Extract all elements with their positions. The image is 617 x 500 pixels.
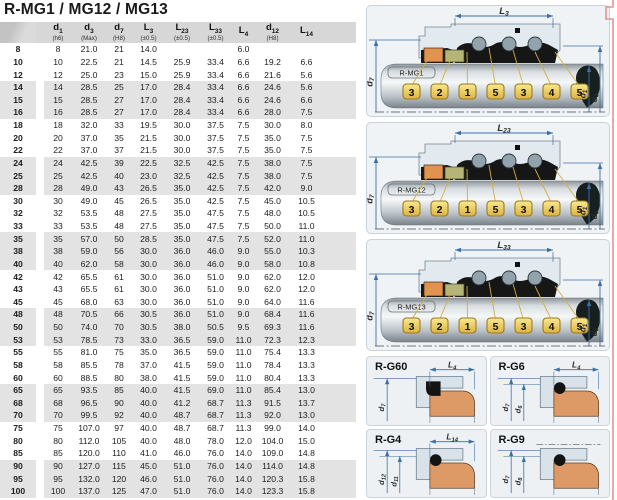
value-cell: 12.0 (290, 284, 323, 294)
value-cell: 11.6 (290, 297, 323, 307)
size-cell: 42 (0, 270, 36, 283)
value-cell: 76.0 (199, 461, 232, 471)
table-row: 585885.57837.041.559.011.078.413.3 (0, 359, 356, 372)
value-cell: 56 (106, 246, 132, 256)
seal-face (424, 282, 443, 296)
value-cell: 38 (44, 246, 72, 256)
value-cell: 137.0 (72, 486, 106, 496)
value-cell: 36.0 (165, 259, 199, 269)
value-cell: 50 (106, 234, 132, 244)
value-cell: 92 (106, 410, 132, 420)
diagram-panel-r-mg12: R-MG123215345L23d7d1d3 (366, 122, 610, 234)
column-header: d1(h6) (44, 23, 72, 43)
value-cell: 78.5 (72, 335, 106, 345)
value-cell: 50.5 (199, 322, 232, 332)
table-row: 404062.05830.036.046.09.058.010.8 (0, 258, 356, 271)
value-cell: 51.0 (165, 474, 199, 484)
value-cell: 115 (106, 461, 132, 471)
value-cell: 48 (106, 208, 132, 218)
size-cell: 28 (0, 182, 36, 195)
size-cell: 48 (0, 308, 36, 321)
value-cell: 40.0 (132, 385, 165, 395)
value-cell: 65 (44, 385, 72, 395)
seal-cross-section: R-MG13215345L3d7d1d3 (367, 6, 609, 116)
value-cell: 14 (44, 82, 72, 92)
value-cell: 40 (106, 171, 132, 181)
value-cell: 59.0 (199, 335, 232, 345)
value-cell: 33.0 (132, 335, 165, 345)
dimension-label: d7 (500, 402, 511, 411)
size-cell: 85 (0, 447, 36, 460)
value-cell: 36.0 (165, 284, 199, 294)
value-cell: 95 (44, 474, 72, 484)
value-cell: 9.0 (232, 246, 255, 256)
size-cell: 55 (0, 346, 36, 359)
table-row: 424265.56130.036.051.09.062.012.0 (0, 270, 356, 283)
value-cell: 21 (106, 57, 132, 67)
table-row: 434365.56130.036.051.09.062.012.0 (0, 283, 356, 296)
value-cell: 105 (106, 436, 132, 446)
value-cell: 28.5 (72, 107, 106, 117)
value-cell: 30.5 (132, 322, 165, 332)
value-cell: 75 (106, 347, 132, 357)
value-cell: 24.6 (255, 95, 290, 105)
spring-coil (472, 271, 486, 285)
page-title: R-MG1 / MG12 / MG13 (4, 1, 168, 19)
size-cell: 45 (0, 296, 36, 309)
size-cell: 22 (0, 144, 36, 157)
value-cell: 70.5 (72, 309, 106, 319)
value-cell: 58.0 (255, 259, 290, 269)
svg-text:1: 1 (465, 321, 471, 333)
value-cell: 25 (106, 82, 132, 92)
spring-coil (502, 154, 516, 168)
value-cell: 132.0 (72, 474, 106, 484)
table-row: 656593.58540.041.569.011.085.413.0 (0, 384, 356, 397)
value-cell: 11.0 (290, 234, 323, 244)
value-cell: 11.3 (232, 410, 255, 420)
spring-coil (528, 271, 542, 285)
value-cell: 10.5 (290, 208, 323, 218)
value-cell: 78 (106, 360, 132, 370)
value-cell: 80 (106, 373, 132, 383)
value-cell: 13.7 (290, 398, 323, 408)
drive-ring (445, 167, 464, 179)
value-cell: 7.5 (232, 221, 255, 231)
value-cell: 78.0 (199, 436, 232, 446)
value-cell: 25.9 (165, 57, 199, 67)
value-cell: 35.0 (255, 145, 290, 155)
value-cell: 40.0 (132, 398, 165, 408)
svg-text:2: 2 (437, 87, 443, 99)
value-cell: 12.0 (290, 272, 323, 282)
value-cell: 30.0 (165, 120, 199, 130)
value-cell: 13.0 (290, 410, 323, 420)
value-cell: 50 (44, 322, 72, 332)
value-cell: 35.0 (132, 347, 165, 357)
value-cell: 21.5 (132, 133, 165, 143)
value-cell: 59.0 (199, 347, 232, 357)
dimension-label: d7 (367, 77, 376, 87)
value-cell: 10 (44, 57, 72, 67)
size-cell: 90 (0, 460, 36, 473)
value-cell: 35.0 (165, 221, 199, 231)
value-cell: 21 (106, 44, 132, 54)
table-row: 555581.07535.036.559.011.075.413.3 (0, 346, 356, 359)
corner-cell (0, 22, 36, 43)
dimension-label: d7 (367, 311, 376, 321)
seat-ring (553, 391, 598, 416)
o-ring (553, 382, 565, 394)
value-cell: 12.0 (232, 436, 255, 446)
value-cell: 35.0 (165, 234, 199, 244)
value-cell: 21.0 (72, 44, 106, 54)
column-header: d12(H8) (255, 23, 290, 43)
value-cell: 43 (44, 284, 72, 294)
value-cell: 38.0 (255, 171, 290, 181)
value-cell: 36.0 (165, 309, 199, 319)
drive-ring (445, 284, 464, 296)
value-cell: 7.5 (290, 171, 323, 181)
value-cell: 19.2 (255, 57, 290, 67)
value-cell: 62.0 (72, 259, 106, 269)
value-cell: 6.6 (290, 57, 323, 67)
value-cell: 62.0 (255, 272, 290, 282)
size-cell: 8 (0, 43, 36, 56)
value-cell: 51.0 (199, 309, 232, 319)
size-cell: 20 (0, 131, 36, 144)
value-cell: 59.0 (199, 360, 232, 370)
value-cell: 9.0 (232, 272, 255, 282)
value-cell: 9.0 (232, 309, 255, 319)
dimension-label: L4 (572, 360, 581, 371)
value-cell: 27.5 (132, 208, 165, 218)
size-cell: 60 (0, 371, 36, 384)
value-cell: 19.5 (132, 120, 165, 130)
value-cell: 15 (44, 95, 72, 105)
svg-text:3: 3 (521, 321, 527, 333)
size-cell: 12 (0, 68, 36, 81)
value-cell: 59.0 (72, 246, 106, 256)
value-cell: 27 (106, 95, 132, 105)
size-cell: 38 (0, 245, 36, 258)
value-cell: 37.0 (72, 145, 106, 155)
table-row: 303049.04526.535.042.57.545.010.5 (0, 195, 356, 208)
seal-cross-section: R-MG123215345L23d7d1d3 (367, 123, 609, 233)
value-cell: 104.0 (255, 436, 290, 446)
value-cell: 45 (44, 297, 72, 307)
value-cell: 28.5 (72, 95, 106, 105)
value-cell: 11.0 (232, 373, 255, 383)
seat-panel-r-g9: R-G9d7d8 (490, 429, 611, 499)
svg-text:2: 2 (437, 204, 443, 216)
value-cell: 81.0 (72, 347, 106, 357)
value-cell: 8.0 (290, 120, 323, 130)
value-cell: 7.5 (232, 158, 255, 168)
table-row: 383859.05630.036.046.09.055.010.3 (0, 245, 356, 258)
value-cell: 69.3 (255, 322, 290, 332)
value-cell: 76.0 (199, 448, 232, 458)
table-row: 151528.52717.028.433.46.624.66.6 (0, 94, 356, 107)
value-cell: 30.0 (255, 120, 290, 130)
seat-ring (553, 463, 598, 488)
value-cell: 61 (106, 272, 132, 282)
value-cell: 28.5 (132, 234, 165, 244)
value-cell: 76.0 (199, 486, 232, 496)
value-cell: 10.8 (290, 259, 323, 269)
value-cell: 78.4 (255, 360, 290, 370)
value-cell: 7.5 (232, 133, 255, 143)
value-cell: 62.0 (255, 284, 290, 294)
value-cell: 120.3 (255, 474, 290, 484)
value-cell: 68.7 (199, 398, 232, 408)
value-cell: 97 (106, 423, 132, 433)
value-cell: 41.5 (165, 360, 199, 370)
column-header: L33(±0.5) (199, 23, 232, 43)
seat-cross-section: L4d7d6 (491, 359, 609, 425)
value-cell: 14.0 (290, 423, 323, 433)
table-row: 9090127.011545.051.076.014.0114.014.8 (0, 460, 356, 473)
value-cell: 50.0 (255, 221, 290, 231)
model-label: R-MG1 (399, 69, 423, 78)
value-cell: 42 (44, 272, 72, 282)
spring-coil (528, 37, 542, 51)
value-cell: 96.5 (72, 398, 106, 408)
value-cell: 15.0 (290, 436, 323, 446)
value-cell: 76.0 (199, 474, 232, 484)
dimension-label: d7 (377, 402, 388, 411)
size-cell: 65 (0, 384, 36, 397)
dimension-label: d6 (513, 404, 524, 413)
value-cell: 65.5 (72, 272, 106, 282)
value-cell: 6.0 (232, 44, 255, 54)
value-cell: 51.0 (199, 284, 232, 294)
table-row: 333353.54827.535.047.57.550.011.0 (0, 220, 356, 233)
table-header: d1(h6)d3(Max)d7(H8)L3(±0.5)L23(±0.5)L33(… (0, 22, 356, 43)
value-cell: 7.5 (232, 196, 255, 206)
value-cell: 16 (44, 107, 72, 117)
table-row: 8585120.011041.046.076.014.0109.014.8 (0, 447, 356, 460)
value-cell: 47.5 (199, 208, 232, 218)
table-row: 707099.59240.048.768.711.392.013.0 (0, 409, 356, 422)
size-cell: 35 (0, 232, 36, 245)
value-cell: 14.0 (132, 44, 165, 54)
spring-coil (528, 154, 542, 168)
value-cell: 80 (44, 436, 72, 446)
size-cell: 58 (0, 359, 36, 372)
size-cell: 30 (0, 195, 36, 208)
seal-face (424, 165, 443, 179)
value-cell: 11.0 (232, 360, 255, 370)
value-cell: 41.5 (165, 385, 199, 395)
value-cell: 26.5 (132, 183, 165, 193)
value-cell: 92.0 (255, 410, 290, 420)
table-row: 222237.03721.530.037.57.535.07.5 (0, 144, 356, 157)
seat-cross-section: L14d12d11 (367, 431, 485, 497)
value-cell: 90 (44, 461, 72, 471)
dimension-label: d12 (377, 473, 388, 485)
value-cell: 9.0 (232, 297, 255, 307)
value-cell: 33.4 (199, 57, 232, 67)
size-cell: 25 (0, 169, 36, 182)
value-cell: 7.5 (290, 107, 323, 117)
value-cell: 32 (44, 208, 72, 218)
value-cell: 68.0 (72, 297, 106, 307)
value-cell: 30.0 (132, 284, 165, 294)
value-cell: 48 (44, 309, 72, 319)
value-cell: 18 (44, 120, 72, 130)
value-cell: 22.5 (72, 57, 106, 67)
value-cell: 13.3 (290, 347, 323, 357)
value-cell: 7.5 (290, 158, 323, 168)
value-cell: 47.0 (132, 486, 165, 496)
value-cell: 25.0 (72, 70, 106, 80)
value-cell: 6.6 (232, 95, 255, 105)
value-cell: 70 (106, 322, 132, 332)
value-cell: 38.0 (165, 322, 199, 332)
value-cell: 47.5 (199, 221, 232, 231)
value-cell: 11.0 (232, 385, 255, 395)
value-cell: 58 (106, 259, 132, 269)
value-cell: 109.0 (255, 448, 290, 458)
value-cell: 55 (44, 347, 72, 357)
seat-cross-section: d7d8 (491, 431, 609, 497)
value-cell: 53.5 (72, 208, 106, 218)
value-cell: 25 (44, 171, 72, 181)
value-cell: 120.0 (72, 448, 106, 458)
table-row: 252542.54023.032.542.57.538.07.5 (0, 169, 356, 182)
table-row: 8821.02114.06.0 (0, 43, 356, 56)
value-cell: 42.0 (255, 183, 290, 193)
value-cell: 13.3 (290, 373, 323, 383)
svg-text:5: 5 (493, 321, 499, 333)
diagram-panel-r-mg1: R-MG13215345L3d7d1d3 (366, 5, 610, 117)
value-cell: 35.0 (165, 208, 199, 218)
size-cell: 18 (0, 119, 36, 132)
value-cell: 63 (106, 297, 132, 307)
value-cell: 65.5 (72, 284, 106, 294)
value-cell: 38.0 (132, 373, 165, 383)
value-cell: 14.5 (132, 57, 165, 67)
value-cell: 22.5 (132, 158, 165, 168)
table-row: 202037.03521.530.037.57.535.07.5 (0, 131, 356, 144)
dimension-label: d7 (367, 194, 376, 204)
value-cell: 51.0 (165, 461, 199, 471)
table-row: 7575107.09740.048.768.711.399.014.0 (0, 422, 356, 435)
table-row: 454568.06330.036.051.09.064.011.6 (0, 296, 356, 309)
seat-ring (430, 463, 475, 488)
value-cell: 41.5 (165, 373, 199, 383)
dimension-label: L3 (499, 6, 509, 18)
value-cell: 30.5 (132, 309, 165, 319)
value-cell: 26.5 (132, 196, 165, 206)
value-cell: 46.0 (132, 474, 165, 484)
value-cell: 27.5 (132, 221, 165, 231)
size-cell: 16 (0, 106, 36, 119)
value-cell: 7.5 (232, 145, 255, 155)
value-cell: 51.0 (199, 272, 232, 282)
svg-text:5: 5 (493, 204, 499, 216)
value-cell: 24.6 (255, 82, 290, 92)
value-cell: 46.0 (199, 246, 232, 256)
value-cell: 35.0 (165, 183, 199, 193)
value-cell: 33 (106, 120, 132, 130)
value-cell: 28.0 (255, 107, 290, 117)
value-cell: 37.0 (132, 360, 165, 370)
size-cell: 80 (0, 434, 36, 447)
value-cell: 9.0 (232, 259, 255, 269)
value-cell: 22 (44, 145, 72, 155)
value-cell: 45.0 (132, 461, 165, 471)
size-cell: 70 (0, 409, 36, 422)
value-cell: 14.0 (232, 448, 255, 458)
size-cell: 50 (0, 321, 36, 334)
value-cell: 30.0 (165, 133, 199, 143)
seat-panel-r-g4: R-G4L14d12d11 (366, 429, 487, 499)
size-cell: 40 (0, 258, 36, 271)
value-cell: 59.0 (199, 373, 232, 383)
value-cell: 61 (106, 284, 132, 294)
table-row: 8080112.010540.048.078.012.0104.015.0 (0, 434, 356, 447)
value-cell: 107.0 (72, 423, 106, 433)
value-cell: 33 (44, 221, 72, 231)
value-cell: 7.5 (232, 183, 255, 193)
value-cell: 14.0 (232, 461, 255, 471)
value-cell: 10.3 (290, 246, 323, 256)
value-cell: 40 (44, 259, 72, 269)
value-cell: 37.0 (72, 133, 106, 143)
value-cell: 32.0 (72, 120, 106, 130)
o-ring (430, 454, 442, 466)
value-cell: 15.0 (132, 70, 165, 80)
table-row: 121225.02315.025.933.46.621.65.6 (0, 68, 356, 81)
value-cell: 6.6 (290, 95, 323, 105)
table-row: 606088.58038.041.559.011.080.413.3 (0, 371, 356, 384)
value-cell: 74.0 (72, 322, 106, 332)
column-header: L23(±0.5) (165, 23, 199, 43)
value-cell: 23 (106, 70, 132, 80)
value-cell: 58 (44, 360, 72, 370)
value-cell: 49.0 (72, 196, 106, 206)
value-cell: 53.5 (72, 221, 106, 231)
value-cell: 30.0 (132, 259, 165, 269)
value-cell: 7.5 (232, 208, 255, 218)
value-cell: 20 (44, 133, 72, 143)
value-cell: 9.0 (232, 284, 255, 294)
dimension-label: L33 (497, 240, 511, 252)
value-cell: 36.5 (165, 335, 199, 345)
value-cell: 85.5 (72, 360, 106, 370)
table-row: 282849.04326.535.042.57.542.09.0 (0, 182, 356, 195)
value-cell: 35 (44, 234, 72, 244)
value-cell: 70 (44, 410, 72, 420)
value-cell: 36.0 (165, 272, 199, 282)
value-cell: 30 (44, 196, 72, 206)
size-cell: 14 (0, 81, 36, 94)
column-header: d7(H8) (106, 23, 132, 43)
value-cell: 41.0 (132, 448, 165, 458)
table-row: 100100137.012547.051.076.014.0123.315.8 (0, 485, 356, 498)
value-cell: 36.5 (165, 347, 199, 357)
value-cell: 127.0 (72, 461, 106, 471)
value-cell: 15.8 (290, 486, 323, 496)
value-cell: 43 (106, 183, 132, 193)
value-cell: 5.6 (290, 82, 323, 92)
value-cell: 13.3 (290, 360, 323, 370)
value-cell: 114.0 (255, 461, 290, 471)
o-ring (553, 454, 565, 466)
value-cell: 73 (106, 335, 132, 345)
